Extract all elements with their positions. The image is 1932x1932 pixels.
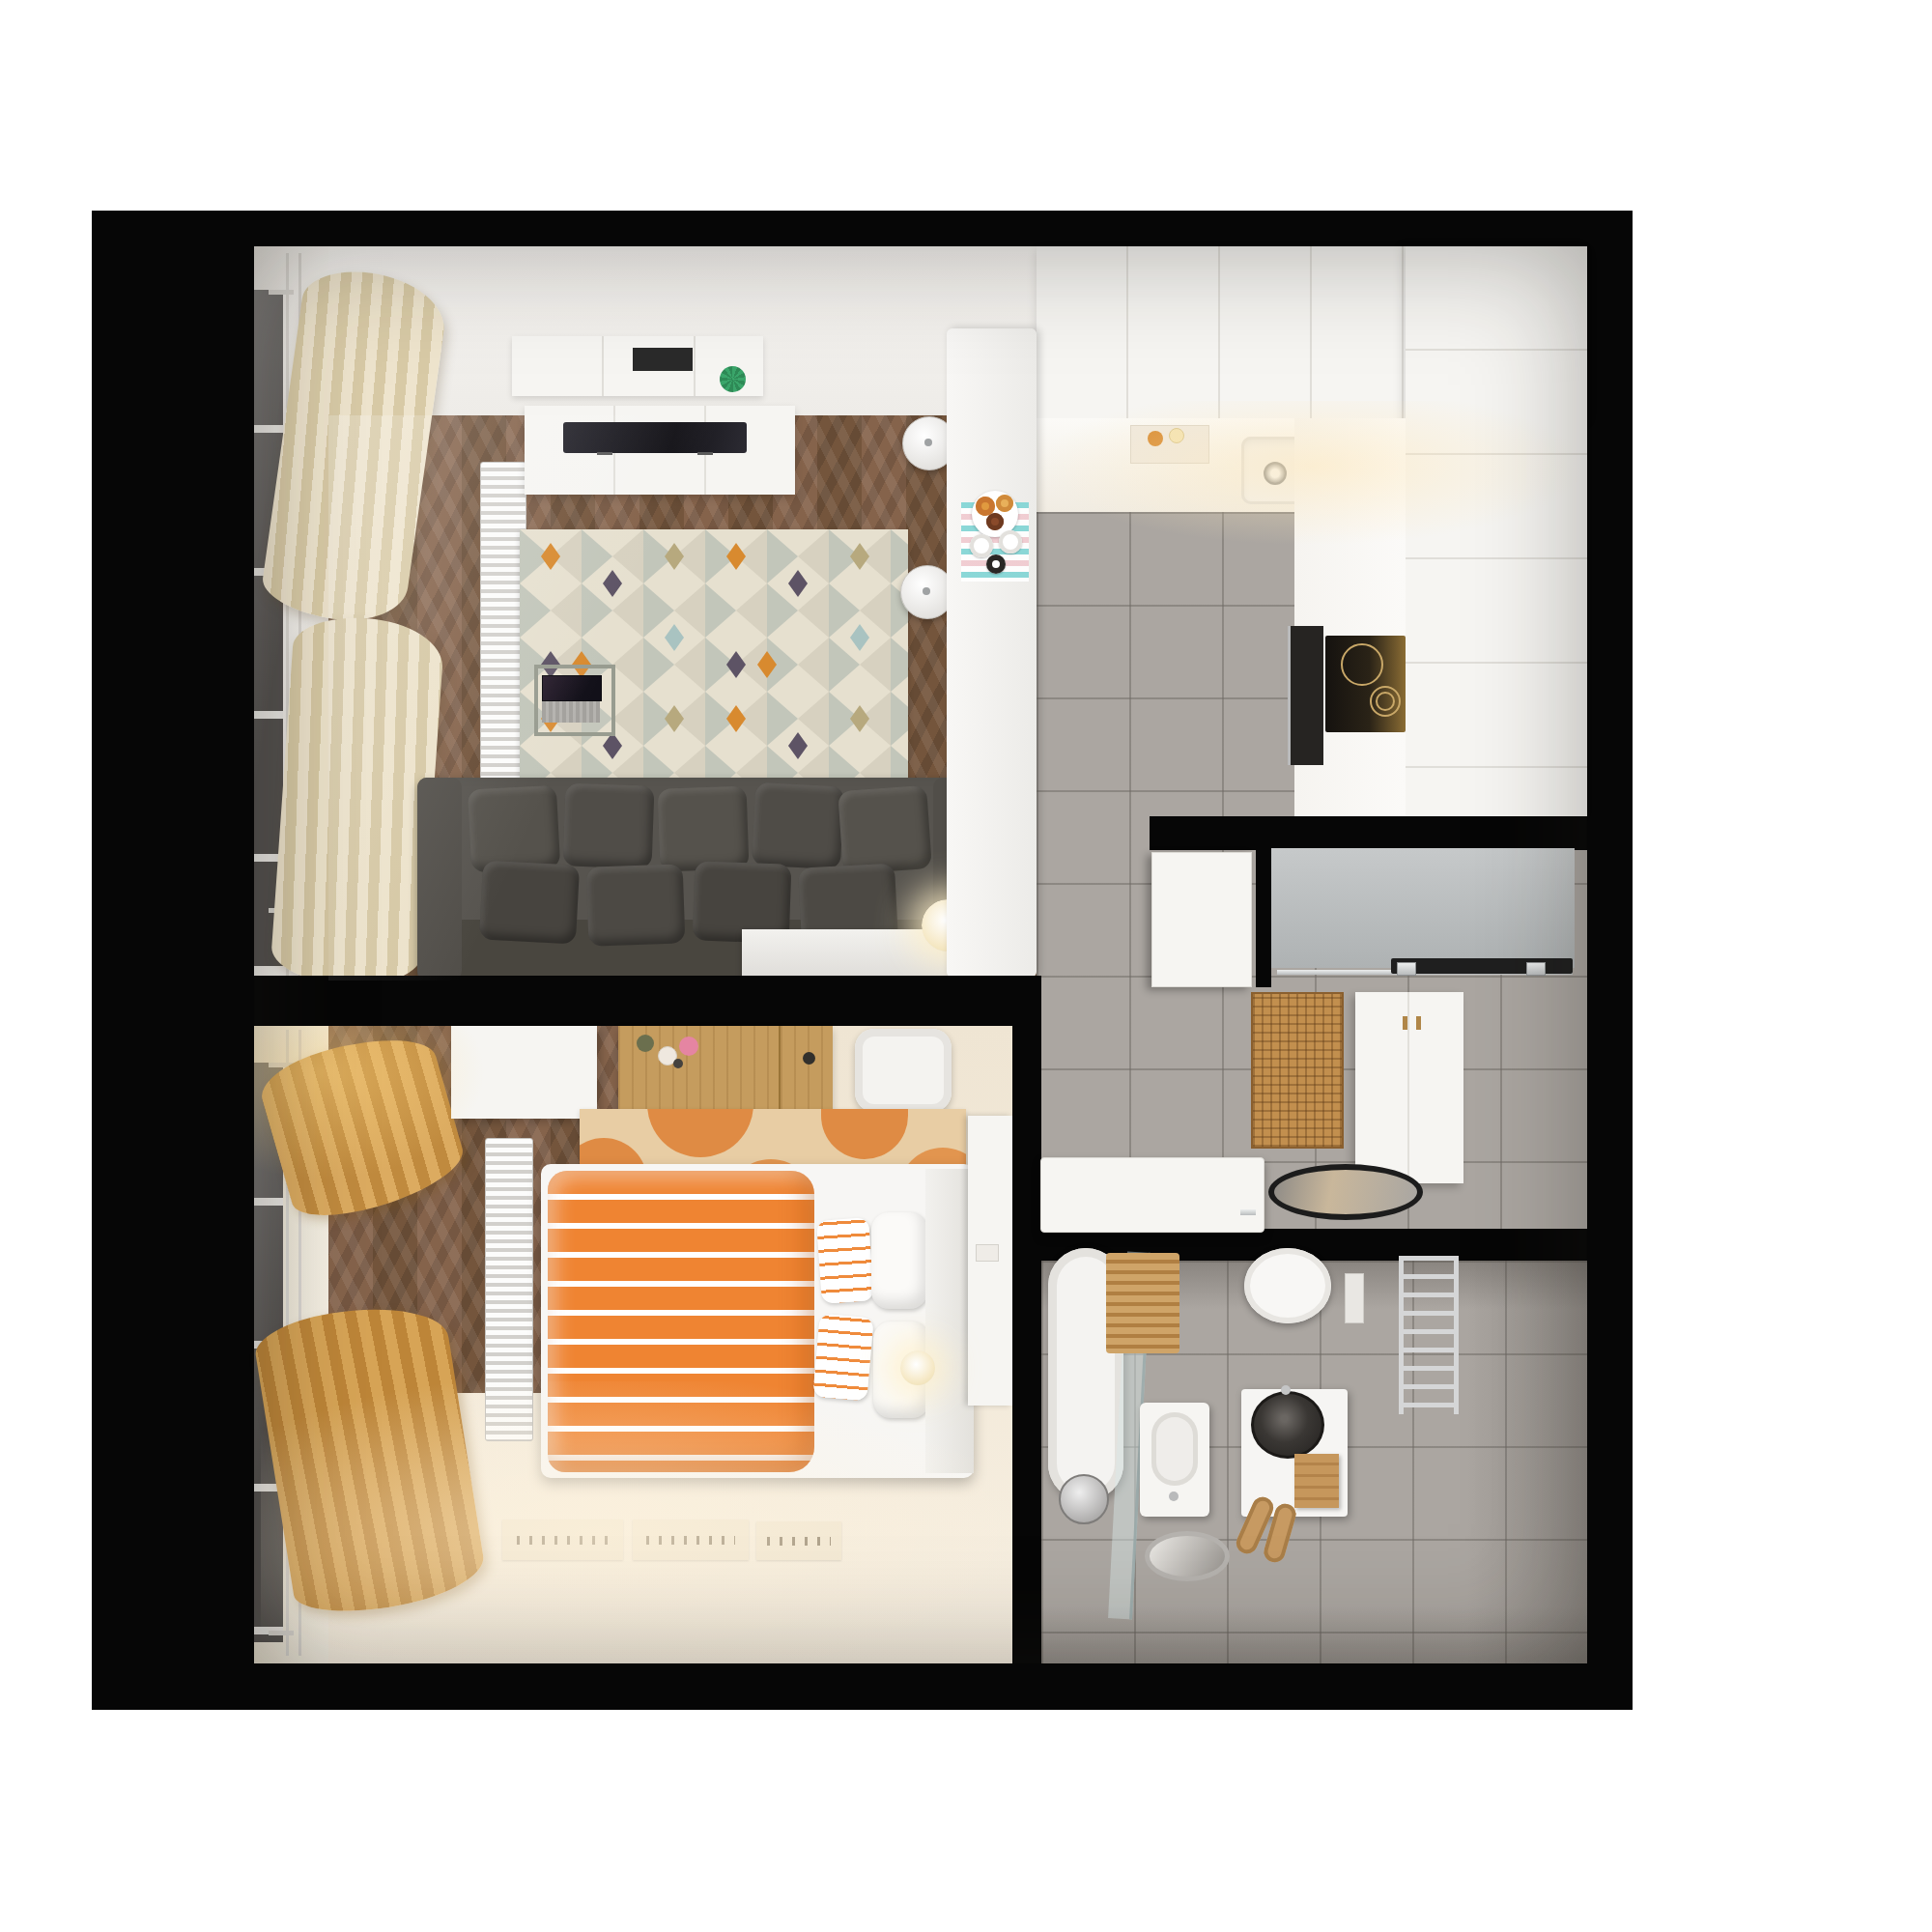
coffee-cup [970,534,993,557]
oval-floor-mirror [1268,1164,1423,1220]
sofa-cushion [479,860,580,944]
wooden-bath-mat [1106,1253,1179,1353]
tv [563,422,747,453]
oven [1288,626,1323,765]
sofa-cushion [752,782,844,870]
niche-side-wall [1256,850,1271,987]
laptop-keyboard [542,701,600,723]
towels [1294,1454,1339,1508]
orange-striped-duvet [548,1171,814,1472]
cosmetic-jar [637,1035,654,1052]
bedroom-wardrobe [451,1026,597,1119]
desk-drawer-seam [779,1026,781,1115]
plant [720,366,746,392]
patterned-rug [520,529,908,784]
laptop-screen [542,675,602,701]
sofa-cushion [586,864,686,946]
white-chair [855,1029,952,1112]
jar [1148,431,1163,446]
black-vessel-sink [1251,1391,1324,1459]
light-switch [976,1244,999,1262]
rattan-doormat [1251,992,1344,1149]
open-bathroom-door [1040,1157,1264,1233]
donut [986,513,1004,530]
striped-pillow [812,1314,873,1402]
sofa-armrest [417,778,462,980]
wall-hung-toilet [1244,1248,1331,1323]
bidet-bowl [1151,1412,1198,1486]
headboard [925,1169,974,1473]
wall-print [633,1520,749,1560]
bedroom-radiator [485,1138,533,1441]
breakfast-bar [947,328,1037,978]
open-white-door [1151,852,1252,987]
cooktop-burner [1376,692,1395,711]
console-handle [1403,1016,1407,1030]
sofa-cushion [838,785,932,874]
sink-tap [1281,1385,1291,1395]
flush-plate [1345,1273,1364,1323]
floor-mirror-disc [1145,1531,1230,1581]
black-mug [986,554,1006,574]
cosmetic-item [673,1059,683,1068]
sofa-cushion [658,785,750,871]
coffee-cup [999,530,1022,554]
cosmetic-jar [679,1037,698,1056]
towel-radiator [1399,1256,1459,1414]
door-roller [1526,962,1546,976]
wall-print [756,1521,841,1560]
door-roller [1397,962,1416,976]
desk-knob [803,1052,815,1065]
bidet-tap [1169,1492,1179,1501]
rug-blob [821,1109,908,1159]
tv-leg [597,452,612,455]
candle [1169,428,1184,443]
shower-head [1059,1474,1109,1524]
console-handle [1416,1016,1421,1030]
shoe-console [1355,992,1463,1183]
kitchen-tall-cabinets [1406,246,1587,816]
wall-living-bedroom [254,976,1037,1026]
white-pillow [871,1212,927,1309]
media-box [633,348,693,371]
door-handle [1240,1209,1256,1215]
stool-hub [924,439,932,446]
wall-bedroom-hall [1012,976,1041,1261]
curtain-bracket [269,290,294,295]
floor-plan-render [0,0,1932,1932]
stool-hub [923,587,930,595]
cooktop-burner [1341,643,1383,686]
curtain-bracket [269,1631,294,1635]
sofa-cushion [563,782,655,868]
ball-lamp [900,1350,935,1385]
wall-kitchen-niche [1150,816,1587,850]
wall-print [502,1520,623,1560]
donut [996,495,1013,512]
sofa-cushion [468,785,560,873]
rug-blob [647,1109,753,1157]
sliding-wardrobe-niche [1271,848,1575,968]
striped-pillow [816,1217,874,1304]
sink-drain [1264,462,1287,485]
tv-leg [697,452,713,455]
